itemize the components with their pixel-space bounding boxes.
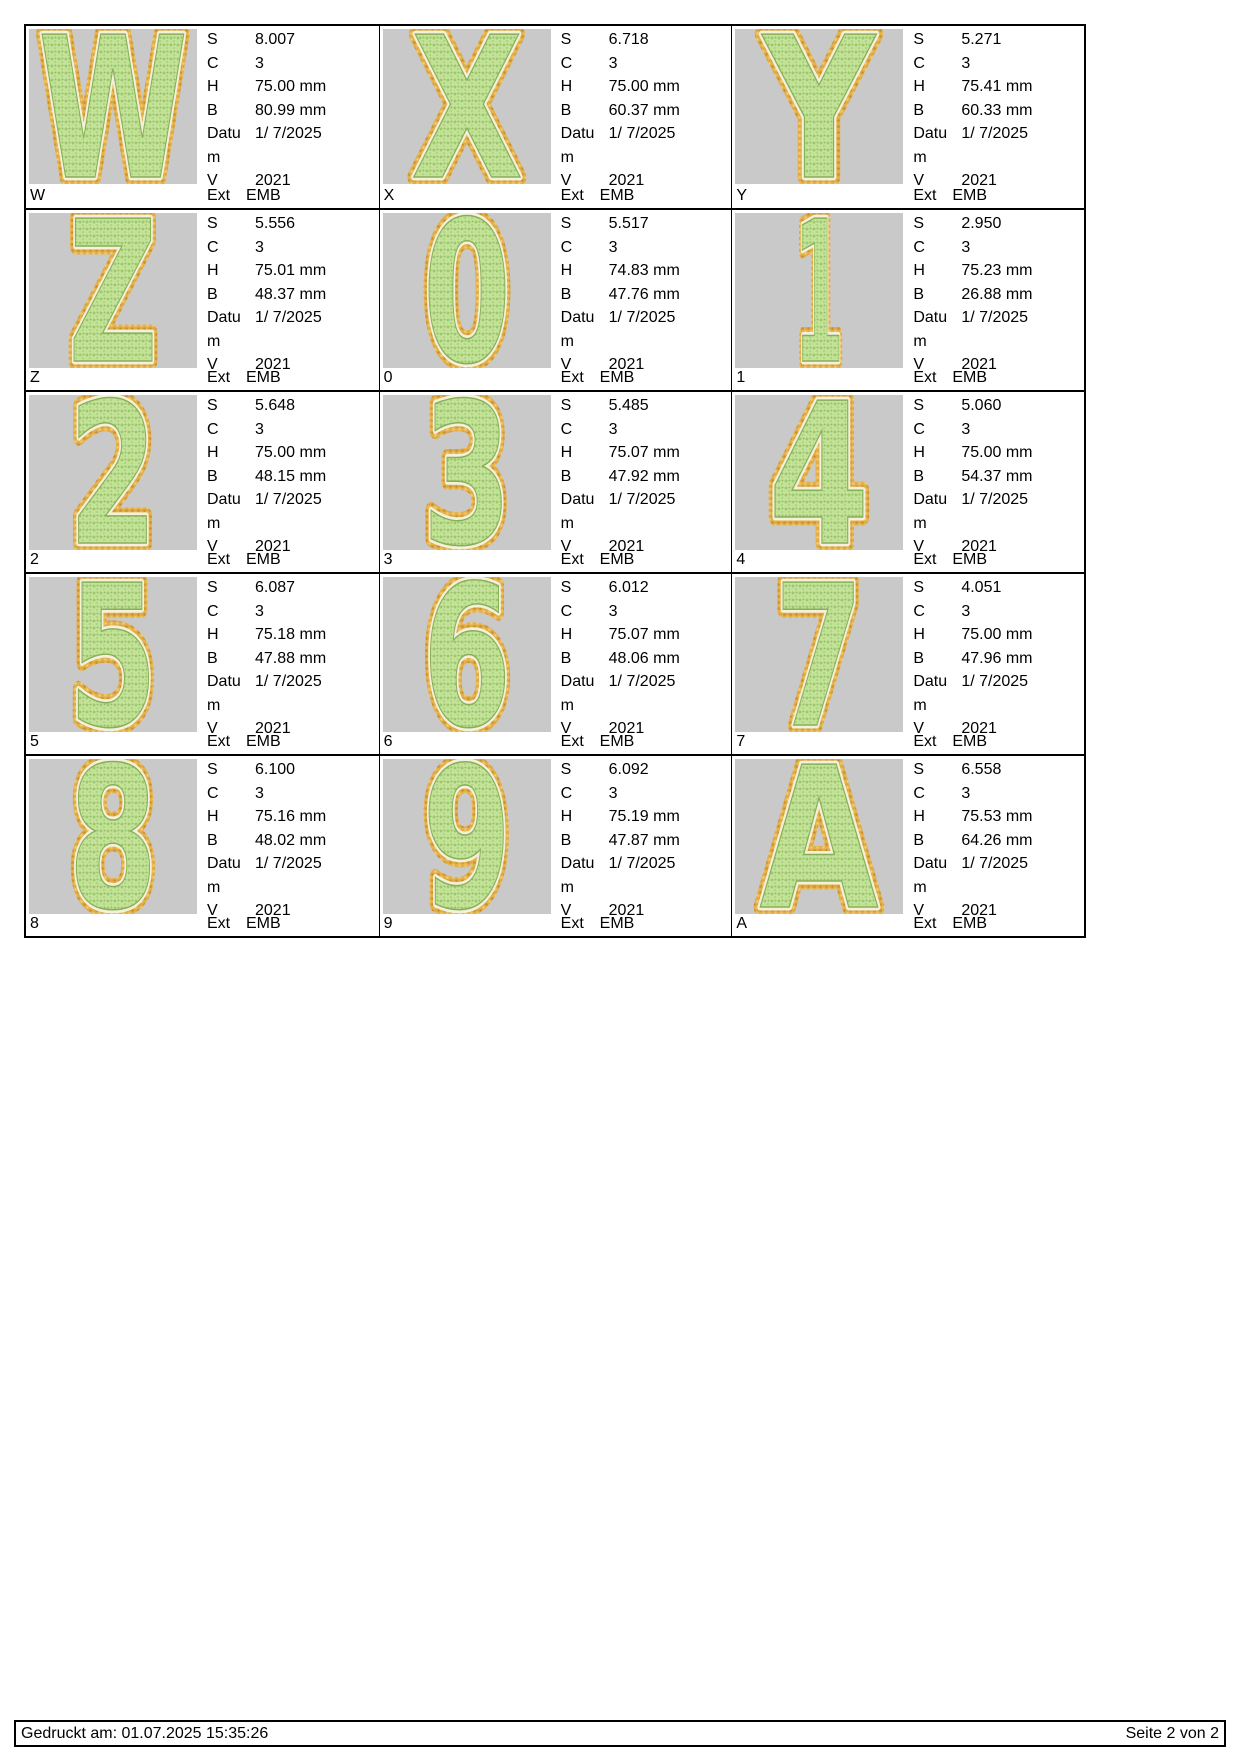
embroidery-glyph: 5 5 5 bbox=[29, 577, 197, 732]
format-row: Ext EMB bbox=[561, 186, 635, 206]
date-label: Datum bbox=[913, 488, 953, 535]
color-count-row: C 3 bbox=[913, 52, 1081, 76]
date-row: Datum 1/ 7/2025 bbox=[561, 306, 729, 353]
date-row: Datum 1/ 7/2025 bbox=[561, 488, 729, 535]
design-cell: 0 0 0 S 5.517 C 3 H 74.83 mm B 47.76 mm bbox=[379, 208, 732, 390]
stitch-count-label: S bbox=[913, 758, 953, 782]
stitch-count-label: S bbox=[561, 758, 601, 782]
date-label: Datum bbox=[913, 852, 953, 899]
color-count-value: 3 bbox=[255, 236, 376, 260]
height-value: 75.00 mm bbox=[255, 75, 376, 99]
width-row: B 54.37 mm bbox=[913, 465, 1081, 489]
format-value: EMB bbox=[952, 368, 987, 388]
date-label: Datum bbox=[913, 306, 953, 353]
stitch-count-label: S bbox=[913, 576, 953, 600]
height-label: H bbox=[207, 623, 247, 647]
stitch-count-label: S bbox=[207, 758, 247, 782]
design-cell: 1 1 1 S 2.950 C 3 H 75.23 mm B 26.88 mm bbox=[731, 208, 1084, 390]
color-count-row: C 3 bbox=[207, 236, 376, 260]
design-cell: 2 2 2 S 5.648 C 3 H 75.00 mm B 48.15 mm bbox=[26, 390, 379, 572]
format-label: Ext bbox=[207, 914, 246, 934]
stitch-count-row: S 4.051 bbox=[913, 576, 1081, 600]
date-value: 1/ 7/2025 bbox=[961, 852, 1081, 899]
date-row: Datum 1/ 7/2025 bbox=[561, 670, 729, 717]
design-cell: 4 4 4 S 5.060 C 3 H 75.00 mm B 54.37 mm bbox=[731, 390, 1084, 572]
width-row: B 47.92 mm bbox=[561, 465, 729, 489]
color-count-label: C bbox=[207, 782, 247, 806]
width-value: 47.88 mm bbox=[255, 647, 376, 671]
format-label: Ext bbox=[561, 914, 600, 934]
height-value: 75.00 mm bbox=[255, 441, 376, 465]
width-label: B bbox=[913, 647, 953, 671]
date-value: 1/ 7/2025 bbox=[609, 122, 729, 169]
stitch-count-label: S bbox=[561, 212, 601, 236]
design-name: 0 bbox=[384, 368, 393, 388]
design-properties: S 5.648 C 3 H 75.00 mm B 48.15 mm Datum … bbox=[207, 394, 376, 559]
date-value: 1/ 7/2025 bbox=[255, 122, 376, 169]
width-label: B bbox=[207, 647, 247, 671]
design-properties: S 5.556 C 3 H 75.01 mm B 48.37 mm Datum … bbox=[207, 212, 376, 377]
date-label: Datum bbox=[561, 306, 601, 353]
format-row: Ext EMB bbox=[561, 732, 635, 752]
height-label: H bbox=[913, 441, 953, 465]
date-row: Datum 1/ 7/2025 bbox=[207, 488, 376, 535]
width-value: 47.76 mm bbox=[609, 283, 729, 307]
design-name: 6 bbox=[384, 732, 393, 752]
height-value: 75.07 mm bbox=[609, 623, 729, 647]
embroidery-glyph: 6 6 6 bbox=[383, 577, 551, 732]
glyph-fill-layer: Z bbox=[69, 213, 158, 368]
design-cell: A A A S 6.558 C 3 H 75.53 mm B 64.26 mm bbox=[731, 754, 1084, 936]
stitch-count-row: S 6.012 bbox=[561, 576, 729, 600]
width-value: 47.87 mm bbox=[609, 829, 729, 853]
width-label: B bbox=[207, 465, 247, 489]
width-row: B 48.02 mm bbox=[207, 829, 376, 853]
design-preview: 7 7 7 bbox=[735, 577, 903, 732]
height-row: H 75.00 mm bbox=[913, 441, 1081, 465]
stitch-count-value: 5.060 bbox=[961, 394, 1081, 418]
color-count-value: 3 bbox=[255, 782, 376, 806]
date-value: 1/ 7/2025 bbox=[961, 670, 1081, 717]
embroidery-glyph: X X X bbox=[383, 29, 551, 184]
height-label: H bbox=[207, 259, 247, 283]
stitch-count-row: S 5.485 bbox=[561, 394, 729, 418]
color-count-row: C 3 bbox=[561, 782, 729, 806]
color-count-label: C bbox=[913, 236, 953, 260]
date-row: Datum 1/ 7/2025 bbox=[913, 306, 1081, 353]
color-count-label: C bbox=[913, 418, 953, 442]
color-count-value: 3 bbox=[961, 418, 1081, 442]
color-count-row: C 3 bbox=[913, 600, 1081, 624]
design-name: A bbox=[736, 914, 747, 934]
date-label: Datum bbox=[207, 306, 247, 353]
format-label: Ext bbox=[913, 732, 952, 752]
color-count-value: 3 bbox=[961, 600, 1081, 624]
date-value: 1/ 7/2025 bbox=[609, 306, 729, 353]
design-preview: X X X bbox=[383, 29, 551, 184]
stitch-count-label: S bbox=[207, 212, 247, 236]
date-row: Datum 1/ 7/2025 bbox=[913, 852, 1081, 899]
design-properties: S 6.718 C 3 H 75.00 mm B 60.37 mm Datum … bbox=[561, 28, 729, 193]
format-label: Ext bbox=[561, 732, 600, 752]
design-properties: S 5.517 C 3 H 74.83 mm B 47.76 mm Datum … bbox=[561, 212, 729, 377]
glyph-fill-layer: 4 bbox=[769, 395, 870, 550]
height-label: H bbox=[207, 805, 247, 829]
width-label: B bbox=[913, 99, 953, 123]
design-name: 5 bbox=[30, 732, 39, 752]
stitch-count-value: 5.271 bbox=[961, 28, 1081, 52]
design-cell: Z Z Z S 5.556 C 3 H 75.01 mm B 48.37 mm bbox=[26, 208, 379, 390]
design-cell: W W W S 8.007 C 3 H 75.00 mm B 80.99 mm bbox=[26, 26, 379, 208]
embroidery-glyph: 7 7 7 bbox=[735, 577, 903, 732]
stitch-count-value: 8.007 bbox=[255, 28, 376, 52]
design-preview: Z Z Z bbox=[29, 213, 197, 368]
format-value: EMB bbox=[246, 732, 281, 752]
design-name: 2 bbox=[30, 550, 39, 570]
glyph-fill-layer: 3 bbox=[422, 395, 511, 550]
height-row: H 75.41 mm bbox=[913, 75, 1081, 99]
format-value: EMB bbox=[600, 186, 635, 206]
format-row: Ext EMB bbox=[913, 914, 987, 934]
height-row: H 75.07 mm bbox=[561, 623, 729, 647]
stitch-count-value: 2.950 bbox=[961, 212, 1081, 236]
stitch-count-label: S bbox=[913, 212, 953, 236]
width-label: B bbox=[207, 829, 247, 853]
color-count-value: 3 bbox=[609, 52, 729, 76]
stitch-count-row: S 6.100 bbox=[207, 758, 376, 782]
design-name: Z bbox=[30, 368, 40, 388]
design-preview: 2 2 2 bbox=[29, 395, 197, 550]
format-row: Ext EMB bbox=[561, 914, 635, 934]
stitch-count-row: S 5.648 bbox=[207, 394, 376, 418]
stitch-count-row: S 2.950 bbox=[913, 212, 1081, 236]
embroidery-glyph: 2 2 2 bbox=[29, 395, 197, 550]
color-count-value: 3 bbox=[961, 782, 1081, 806]
date-value: 1/ 7/2025 bbox=[609, 852, 729, 899]
format-row: Ext EMB bbox=[913, 368, 987, 388]
embroidery-glyph: 1 1 1 bbox=[735, 213, 903, 368]
stitch-count-row: S 6.092 bbox=[561, 758, 729, 782]
glyph-fill-layer: 9 bbox=[422, 759, 511, 914]
format-row: Ext EMB bbox=[561, 368, 635, 388]
color-count-row: C 3 bbox=[561, 52, 729, 76]
color-count-row: C 3 bbox=[913, 418, 1081, 442]
color-count-label: C bbox=[207, 418, 247, 442]
stitch-count-row: S 5.060 bbox=[913, 394, 1081, 418]
design-properties: S 2.950 C 3 H 75.23 mm B 26.88 mm Datum … bbox=[913, 212, 1081, 377]
design-name: Y bbox=[736, 186, 747, 206]
printed-timestamp: Gedruckt am: 01.07.2025 15:35:26 bbox=[21, 1725, 268, 1743]
stitch-count-value: 6.012 bbox=[609, 576, 729, 600]
design-preview: 3 3 3 bbox=[383, 395, 551, 550]
date-row: Datum 1/ 7/2025 bbox=[561, 852, 729, 899]
format-value: EMB bbox=[600, 914, 635, 934]
color-count-value: 3 bbox=[609, 236, 729, 260]
height-row: H 75.23 mm bbox=[913, 259, 1081, 283]
date-value: 1/ 7/2025 bbox=[961, 122, 1081, 169]
height-label: H bbox=[561, 75, 601, 99]
width-value: 26.88 mm bbox=[961, 283, 1081, 307]
date-value: 1/ 7/2025 bbox=[609, 670, 729, 717]
format-row: Ext EMB bbox=[207, 186, 281, 206]
color-count-row: C 3 bbox=[561, 600, 729, 624]
format-row: Ext EMB bbox=[561, 550, 635, 570]
width-label: B bbox=[207, 283, 247, 307]
design-name: 8 bbox=[30, 914, 39, 934]
height-row: H 75.01 mm bbox=[207, 259, 376, 283]
date-value: 1/ 7/2025 bbox=[255, 488, 376, 535]
color-count-label: C bbox=[561, 418, 601, 442]
color-count-label: C bbox=[913, 782, 953, 806]
color-count-row: C 3 bbox=[913, 236, 1081, 260]
width-row: B 47.96 mm bbox=[913, 647, 1081, 671]
date-row: Datum 1/ 7/2025 bbox=[913, 670, 1081, 717]
design-cell: 6 6 6 S 6.012 C 3 H 75.07 mm B 48.06 mm bbox=[379, 572, 732, 754]
date-value: 1/ 7/2025 bbox=[255, 306, 376, 353]
date-label: Datum bbox=[913, 122, 953, 169]
format-value: EMB bbox=[952, 914, 987, 934]
design-cell: Y Y Y S 5.271 C 3 H 75.41 mm B 60.33 mm bbox=[731, 26, 1084, 208]
glyph-fill-layer: 5 bbox=[69, 577, 158, 732]
format-row: Ext EMB bbox=[913, 186, 987, 206]
date-label: Datum bbox=[561, 670, 601, 717]
format-label: Ext bbox=[207, 732, 246, 752]
stitch-count-row: S 6.718 bbox=[561, 28, 729, 52]
format-row: Ext EMB bbox=[207, 368, 281, 388]
glyph-fill-layer: 1 bbox=[794, 213, 844, 368]
width-value: 48.06 mm bbox=[609, 647, 729, 671]
width-row: B 48.06 mm bbox=[561, 647, 729, 671]
design-cell: 5 5 5 S 6.087 C 3 H 75.18 mm B 47.88 mm bbox=[26, 572, 379, 754]
design-cell: 3 3 3 S 5.485 C 3 H 75.07 mm B 47.92 mm bbox=[379, 390, 732, 572]
page-footer: Gedruckt am: 01.07.2025 15:35:26 Seite 2… bbox=[14, 1720, 1226, 1747]
glyph-fill-layer: 7 bbox=[775, 577, 864, 732]
color-count-value: 3 bbox=[255, 600, 376, 624]
design-name: 9 bbox=[384, 914, 393, 934]
glyph-fill-layer: X bbox=[411, 29, 523, 184]
date-value: 1/ 7/2025 bbox=[961, 306, 1081, 353]
height-value: 75.53 mm bbox=[961, 805, 1081, 829]
width-row: B 64.26 mm bbox=[913, 829, 1081, 853]
stitch-count-row: S 6.087 bbox=[207, 576, 376, 600]
height-label: H bbox=[913, 259, 953, 283]
format-value: EMB bbox=[952, 550, 987, 570]
design-properties: S 6.092 C 3 H 75.19 mm B 47.87 mm Datum … bbox=[561, 758, 729, 923]
height-label: H bbox=[207, 75, 247, 99]
stitch-count-label: S bbox=[207, 576, 247, 600]
design-name: 3 bbox=[384, 550, 393, 570]
width-label: B bbox=[207, 99, 247, 123]
stitch-count-value: 4.051 bbox=[961, 576, 1081, 600]
color-count-row: C 3 bbox=[913, 782, 1081, 806]
stitch-count-label: S bbox=[207, 394, 247, 418]
color-count-label: C bbox=[561, 52, 601, 76]
stitch-count-label: S bbox=[561, 394, 601, 418]
height-value: 75.01 mm bbox=[255, 259, 376, 283]
date-row: Datum 1/ 7/2025 bbox=[207, 670, 376, 717]
format-row: Ext EMB bbox=[913, 550, 987, 570]
height-row: H 75.16 mm bbox=[207, 805, 376, 829]
format-label: Ext bbox=[913, 186, 952, 206]
height-value: 75.00 mm bbox=[961, 441, 1081, 465]
height-value: 75.00 mm bbox=[961, 623, 1081, 647]
width-label: B bbox=[561, 99, 601, 123]
design-cell: X X X S 6.718 C 3 H 75.00 mm B 60.37 mm bbox=[379, 26, 732, 208]
design-properties: S 8.007 C 3 H 75.00 mm B 80.99 mm Datum … bbox=[207, 28, 376, 193]
date-row: Datum 1/ 7/2025 bbox=[561, 122, 729, 169]
date-label: Datum bbox=[561, 852, 601, 899]
color-count-row: C 3 bbox=[207, 418, 376, 442]
format-row: Ext EMB bbox=[207, 914, 281, 934]
width-row: B 47.87 mm bbox=[561, 829, 729, 853]
date-value: 1/ 7/2025 bbox=[609, 488, 729, 535]
glyph-fill-layer: 2 bbox=[69, 395, 158, 550]
design-preview: 0 0 0 bbox=[383, 213, 551, 368]
glyph-fill-layer: A bbox=[760, 759, 879, 914]
stitch-count-label: S bbox=[913, 28, 953, 52]
embroidery-glyph: Y Y Y bbox=[735, 29, 903, 184]
height-value: 75.16 mm bbox=[255, 805, 376, 829]
stitch-count-value: 6.087 bbox=[255, 576, 376, 600]
design-properties: S 5.271 C 3 H 75.41 mm B 60.33 mm Datum … bbox=[913, 28, 1081, 193]
design-properties: S 6.012 C 3 H 75.07 mm B 48.06 mm Datum … bbox=[561, 576, 729, 741]
stitch-count-row: S 5.271 bbox=[913, 28, 1081, 52]
width-value: 64.26 mm bbox=[961, 829, 1081, 853]
color-count-value: 3 bbox=[609, 782, 729, 806]
height-row: H 75.00 mm bbox=[561, 75, 729, 99]
glyph-fill-layer: Y bbox=[762, 29, 877, 184]
width-row: B 60.33 mm bbox=[913, 99, 1081, 123]
height-row: H 75.53 mm bbox=[913, 805, 1081, 829]
date-value: 1/ 7/2025 bbox=[961, 488, 1081, 535]
color-count-label: C bbox=[913, 52, 953, 76]
stitch-count-row: S 5.556 bbox=[207, 212, 376, 236]
design-properties: S 6.558 C 3 H 75.53 mm B 64.26 mm Datum … bbox=[913, 758, 1081, 923]
width-row: B 48.37 mm bbox=[207, 283, 376, 307]
color-count-label: C bbox=[561, 600, 601, 624]
date-value: 1/ 7/2025 bbox=[255, 852, 376, 899]
design-properties: S 6.087 C 3 H 75.18 mm B 47.88 mm Datum … bbox=[207, 576, 376, 741]
width-row: B 60.37 mm bbox=[561, 99, 729, 123]
height-label: H bbox=[913, 805, 953, 829]
height-value: 75.23 mm bbox=[961, 259, 1081, 283]
design-name: 4 bbox=[736, 550, 745, 570]
color-count-label: C bbox=[913, 600, 953, 624]
date-label: Datum bbox=[913, 670, 953, 717]
height-row: H 75.19 mm bbox=[561, 805, 729, 829]
height-row: H 75.07 mm bbox=[561, 441, 729, 465]
color-count-row: C 3 bbox=[561, 418, 729, 442]
height-label: H bbox=[913, 75, 953, 99]
design-preview: Y Y Y bbox=[735, 29, 903, 184]
design-preview: 6 6 6 bbox=[383, 577, 551, 732]
design-properties: S 5.060 C 3 H 75.00 mm B 54.37 mm Datum … bbox=[913, 394, 1081, 559]
format-value: EMB bbox=[952, 732, 987, 752]
design-properties: S 4.051 C 3 H 75.00 mm B 47.96 mm Datum … bbox=[913, 576, 1081, 741]
format-row: Ext EMB bbox=[207, 732, 281, 752]
stitch-count-value: 6.558 bbox=[961, 758, 1081, 782]
design-grid: W W W S 8.007 C 3 H 75.00 mm B 80.99 mm bbox=[24, 24, 1086, 938]
embroidery-glyph: 0 0 0 bbox=[383, 213, 551, 368]
design-properties: S 6.100 C 3 H 75.16 mm B 48.02 mm Datum … bbox=[207, 758, 376, 923]
stitch-count-value: 6.100 bbox=[255, 758, 376, 782]
stitch-count-label: S bbox=[561, 28, 601, 52]
height-label: H bbox=[561, 441, 601, 465]
color-count-value: 3 bbox=[609, 418, 729, 442]
date-label: Datum bbox=[207, 122, 247, 169]
color-count-value: 3 bbox=[961, 52, 1081, 76]
design-name: 7 bbox=[736, 732, 745, 752]
design-cell: 9 9 9 S 6.092 C 3 H 75.19 mm B 47.87 mm bbox=[379, 754, 732, 936]
format-label: Ext bbox=[913, 914, 952, 934]
width-row: B 26.88 mm bbox=[913, 283, 1081, 307]
stitch-count-value: 5.648 bbox=[255, 394, 376, 418]
format-value: EMB bbox=[952, 186, 987, 206]
stitch-count-label: S bbox=[207, 28, 247, 52]
format-label: Ext bbox=[561, 368, 600, 388]
format-value: EMB bbox=[600, 732, 635, 752]
height-row: H 74.83 mm bbox=[561, 259, 729, 283]
design-name: W bbox=[30, 186, 45, 206]
date-row: Datum 1/ 7/2025 bbox=[207, 852, 376, 899]
design-preview: 5 5 5 bbox=[29, 577, 197, 732]
stitch-count-value: 6.092 bbox=[609, 758, 729, 782]
format-value: EMB bbox=[600, 550, 635, 570]
embroidery-glyph: 3 3 3 bbox=[383, 395, 551, 550]
glyph-fill-layer: W bbox=[38, 29, 188, 184]
color-count-row: C 3 bbox=[207, 600, 376, 624]
width-row: B 48.15 mm bbox=[207, 465, 376, 489]
width-row: B 80.99 mm bbox=[207, 99, 376, 123]
color-count-value: 3 bbox=[961, 236, 1081, 260]
color-count-row: C 3 bbox=[207, 52, 376, 76]
color-count-value: 3 bbox=[255, 418, 376, 442]
format-label: Ext bbox=[207, 550, 246, 570]
date-label: Datum bbox=[207, 488, 247, 535]
width-value: 60.33 mm bbox=[961, 99, 1081, 123]
embroidery-glyph: 4 4 4 bbox=[735, 395, 903, 550]
color-count-label: C bbox=[207, 236, 247, 260]
height-row: H 75.00 mm bbox=[207, 75, 376, 99]
design-cell: 7 7 7 S 4.051 C 3 H 75.00 mm B 47.96 mm bbox=[731, 572, 1084, 754]
height-row: H 75.00 mm bbox=[913, 623, 1081, 647]
height-value: 75.07 mm bbox=[609, 441, 729, 465]
page-number: Seite 2 von 2 bbox=[1126, 1725, 1219, 1743]
width-value: 80.99 mm bbox=[255, 99, 376, 123]
date-label: Datum bbox=[207, 670, 247, 717]
embroidery-glyph: 8 8 8 bbox=[29, 759, 197, 914]
color-count-label: C bbox=[561, 236, 601, 260]
design-preview: 4 4 4 bbox=[735, 395, 903, 550]
color-count-label: C bbox=[207, 600, 247, 624]
format-label: Ext bbox=[913, 550, 952, 570]
format-value: EMB bbox=[246, 186, 281, 206]
design-preview: 8 8 8 bbox=[29, 759, 197, 914]
width-value: 48.37 mm bbox=[255, 283, 376, 307]
width-value: 48.15 mm bbox=[255, 465, 376, 489]
color-count-label: C bbox=[207, 52, 247, 76]
width-value: 48.02 mm bbox=[255, 829, 376, 853]
width-value: 60.37 mm bbox=[609, 99, 729, 123]
width-label: B bbox=[561, 647, 601, 671]
format-value: EMB bbox=[246, 368, 281, 388]
stitch-count-value: 5.556 bbox=[255, 212, 376, 236]
format-row: Ext EMB bbox=[207, 550, 281, 570]
format-label: Ext bbox=[561, 186, 600, 206]
design-name: 1 bbox=[736, 368, 745, 388]
height-label: H bbox=[561, 623, 601, 647]
design-preview: 9 9 9 bbox=[383, 759, 551, 914]
